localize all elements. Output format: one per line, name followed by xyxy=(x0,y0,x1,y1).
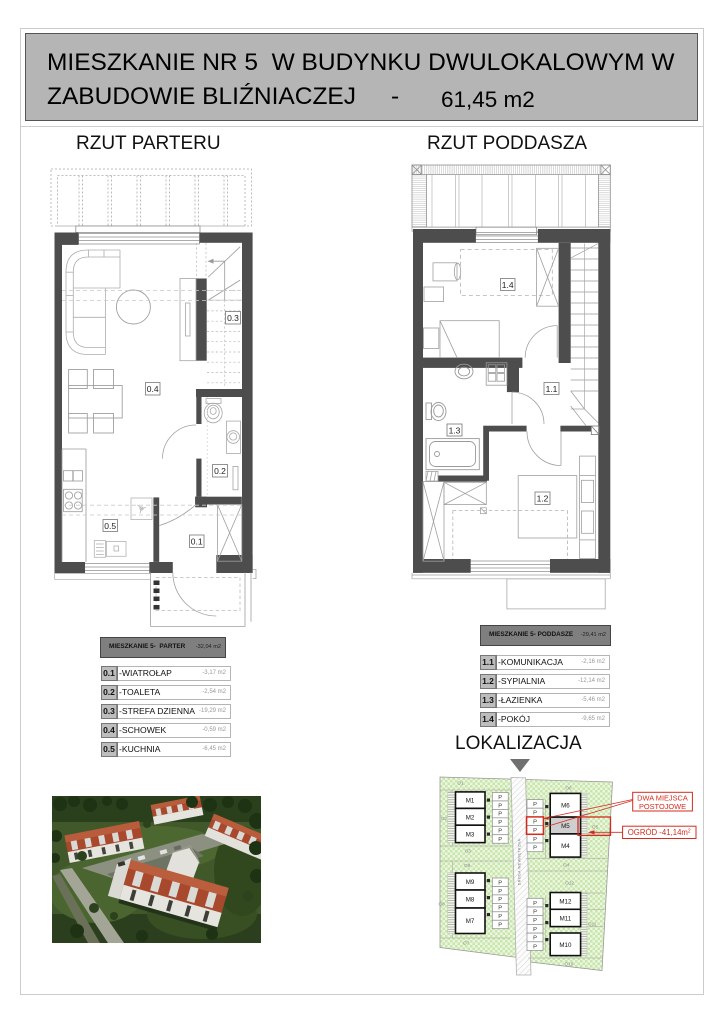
svg-text:P: P xyxy=(498,820,502,826)
svg-text:O11: O11 xyxy=(588,922,597,927)
svg-text:P: P xyxy=(498,829,502,835)
svg-text:P: P xyxy=(498,837,502,843)
svg-text:O6: O6 xyxy=(565,786,572,791)
svg-text:P: P xyxy=(533,837,537,843)
svg-text:P: P xyxy=(533,944,537,950)
svg-text:P: P xyxy=(533,918,537,924)
svg-text:OGRÓD -41,14m2: OGRÓD -41,14m2 xyxy=(628,828,691,837)
svg-text:O5: O5 xyxy=(592,825,599,830)
svg-text:M5: M5 xyxy=(561,823,570,830)
svg-text:M8: M8 xyxy=(466,897,475,904)
svg-text:M9: M9 xyxy=(466,879,475,886)
svg-text:M4: M4 xyxy=(561,843,570,850)
svg-text:P: P xyxy=(533,811,537,817)
svg-text:0.3: 0.3 xyxy=(227,313,239,323)
svg-text:P: P xyxy=(533,828,537,834)
svg-text:M7: M7 xyxy=(466,918,475,925)
svg-text:P: P xyxy=(498,914,502,920)
svg-text:O4: O4 xyxy=(563,862,570,867)
svg-text:P: P xyxy=(533,802,537,808)
svg-text:M11: M11 xyxy=(560,915,572,922)
svg-text:P: P xyxy=(533,927,537,933)
svg-text:0.1: 0.1 xyxy=(191,537,203,547)
svg-text:O7: O7 xyxy=(463,940,470,945)
svg-text:M1: M1 xyxy=(466,798,475,805)
svg-text:M6: M6 xyxy=(561,803,570,810)
svg-text:1.1: 1.1 xyxy=(546,384,558,394)
svg-text:M3: M3 xyxy=(466,831,475,838)
svg-text:O2: O2 xyxy=(441,816,448,821)
svg-text:P: P xyxy=(533,910,537,916)
svg-text:P: P xyxy=(498,803,502,809)
svg-text:P: P xyxy=(498,880,502,886)
svg-text:O9: O9 xyxy=(464,863,471,868)
svg-text:M10: M10 xyxy=(559,942,572,949)
svg-text:P: P xyxy=(498,906,502,912)
svg-text:0.5: 0.5 xyxy=(104,521,116,531)
svg-text:1.4: 1.4 xyxy=(502,280,514,290)
svg-text:DROGA WEWNĘTRZNA: DROGA WEWNĘTRZNA xyxy=(518,839,522,886)
svg-text:POSTOJOWE: POSTOJOWE xyxy=(639,802,686,811)
svg-text:M2: M2 xyxy=(466,814,475,821)
svg-text:O3: O3 xyxy=(465,849,472,854)
svg-text:P: P xyxy=(498,923,502,929)
svg-text:P: P xyxy=(498,889,502,895)
svg-text:0.2: 0.2 xyxy=(214,466,226,476)
svg-text:O1: O1 xyxy=(457,780,464,785)
svg-text:P: P xyxy=(533,936,537,942)
svg-text:O10: O10 xyxy=(565,961,574,966)
svg-text:1.3: 1.3 xyxy=(449,426,461,436)
svg-text:1.2: 1.2 xyxy=(537,494,549,504)
svg-text:P: P xyxy=(498,795,502,801)
svg-text:O8: O8 xyxy=(439,902,446,907)
svg-text:P: P xyxy=(498,812,502,818)
svg-text:M12: M12 xyxy=(559,898,572,905)
svg-text:P: P xyxy=(533,901,537,907)
svg-text:0.4: 0.4 xyxy=(147,384,159,394)
svg-text:P: P xyxy=(533,819,537,825)
svg-text:P: P xyxy=(533,846,537,852)
svg-text:P: P xyxy=(498,897,502,903)
svg-text:O12: O12 xyxy=(565,880,574,885)
